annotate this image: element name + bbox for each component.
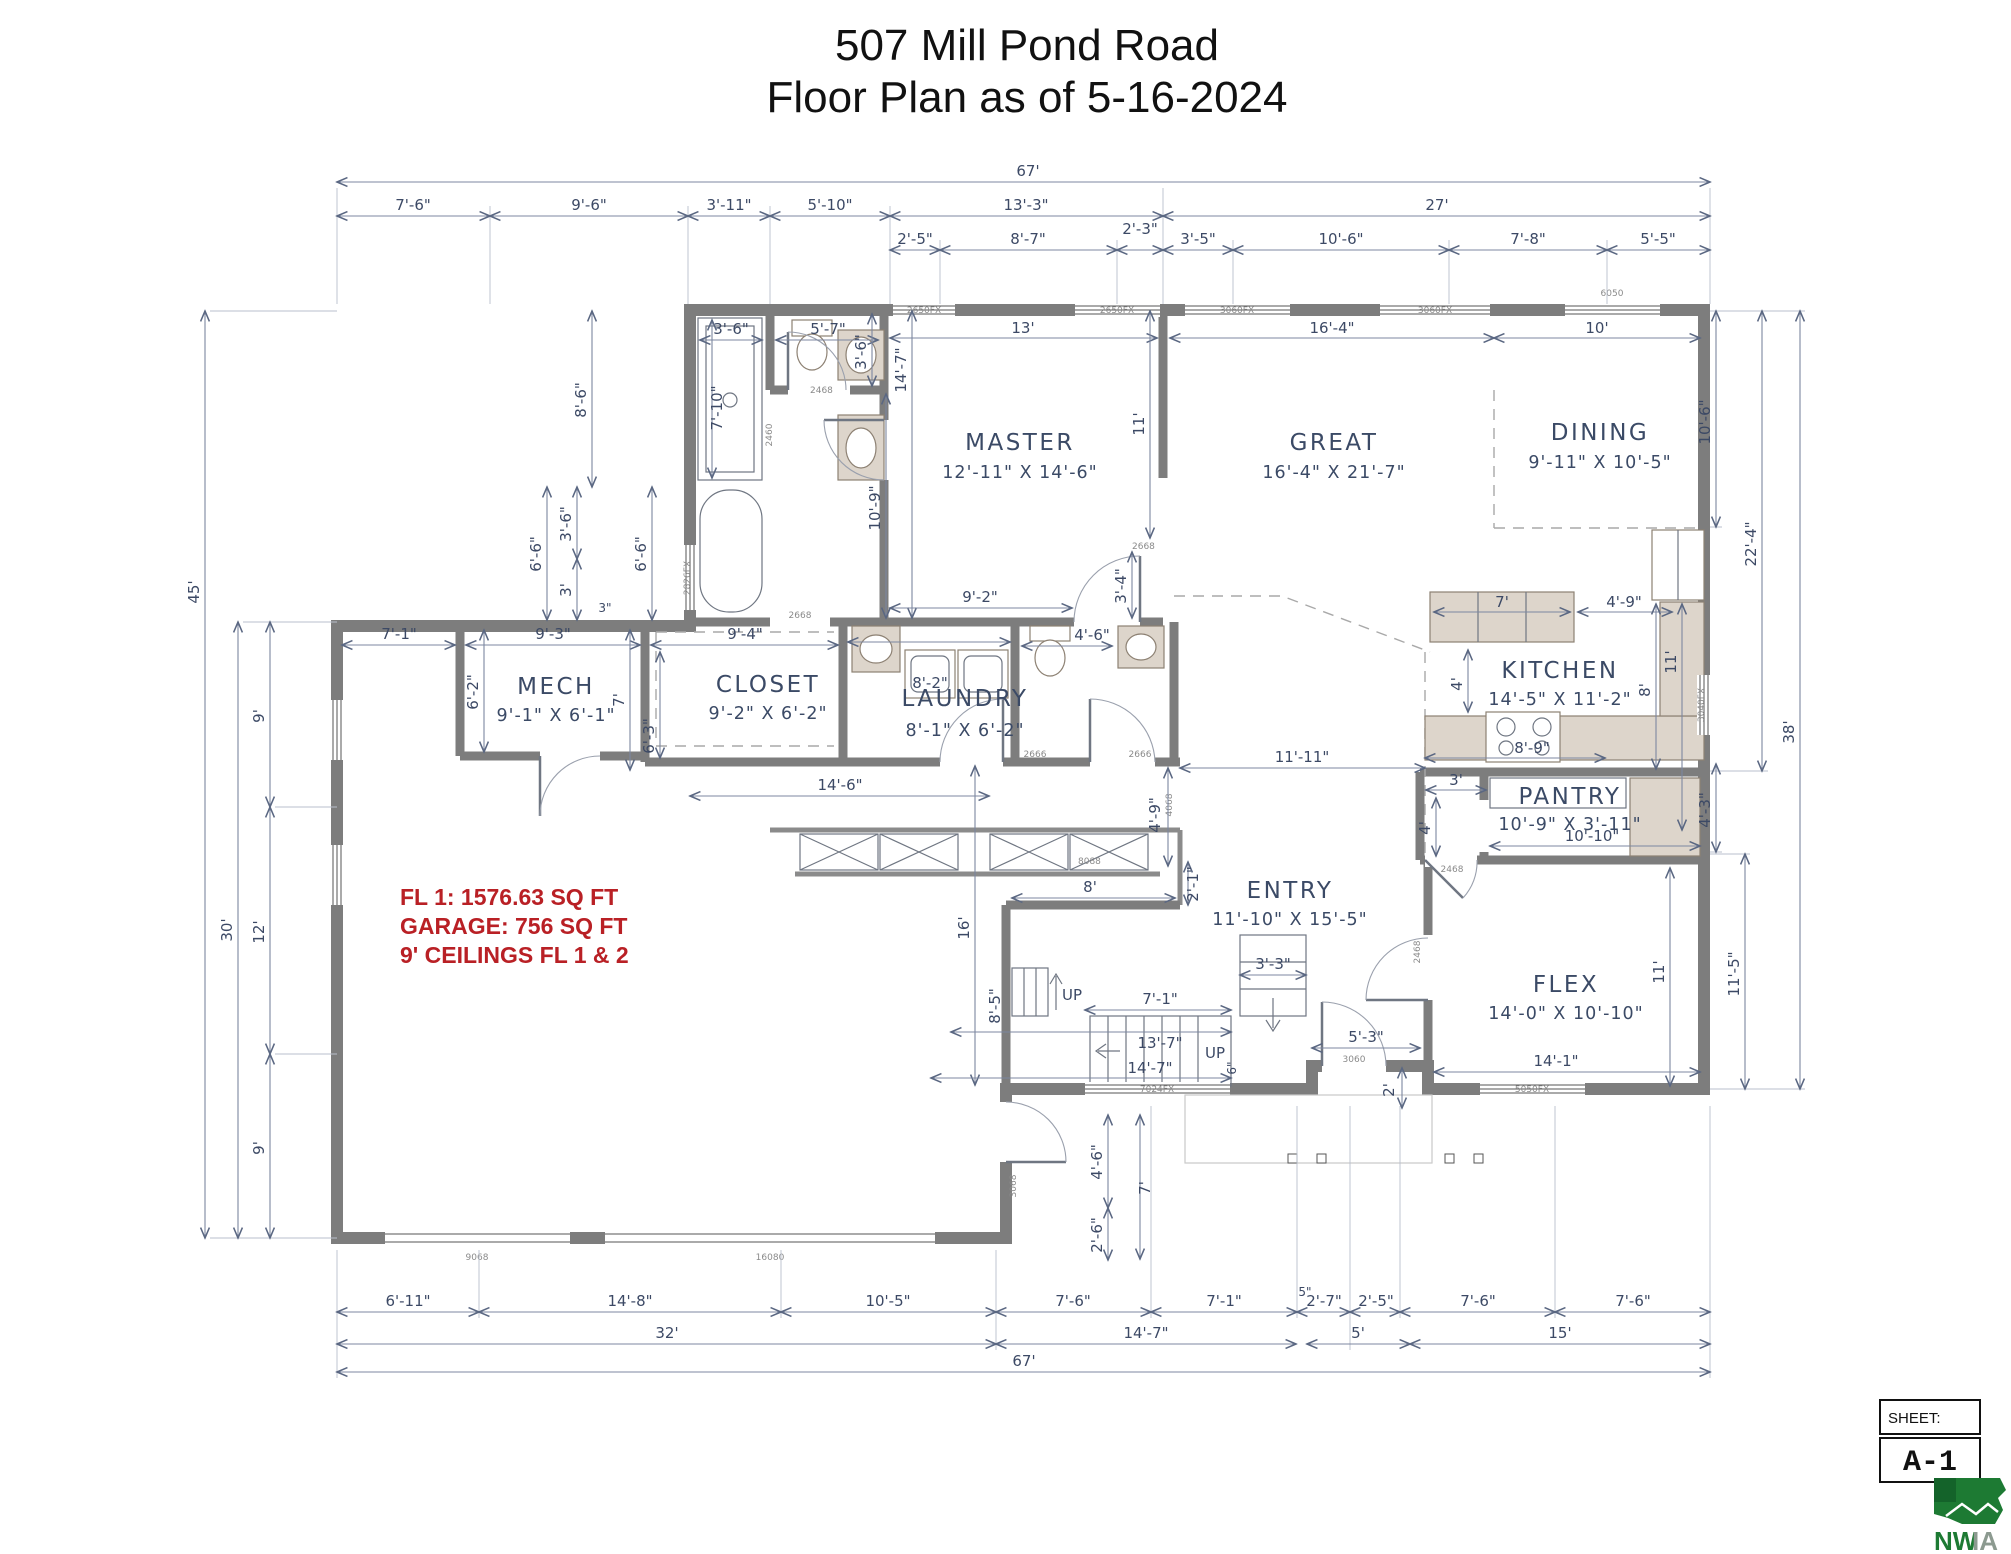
dim: 38'	[1780, 720, 1798, 743]
window-2826fx: 2826FX	[683, 545, 697, 610]
dim: 4'-9"	[1146, 797, 1164, 833]
window-label: 2650FX	[1100, 306, 1134, 316]
room-mech-dims: 9'-1" X 6'-1"	[497, 706, 616, 726]
stairs-up-label-1: UP	[1062, 986, 1082, 1004]
dim: 10'-6"	[1318, 230, 1363, 248]
area-annotation: FL 1: 1576.63 SQ FT GARAGE: 756 SQ FT 9'…	[400, 884, 629, 968]
dim: 7'-8"	[1510, 230, 1546, 248]
dim: 7'	[1136, 1181, 1154, 1195]
dim: 45'	[185, 580, 203, 603]
dim: 11'	[1662, 650, 1680, 673]
logo-text-ia: IA	[1972, 1526, 1998, 1554]
dim: 2'-3"	[1122, 220, 1158, 238]
dim: 7'-1"	[1206, 1292, 1242, 1310]
floor-plan-page: 507 Mill Pond Road Floor Plan as of 5-16…	[0, 0, 2011, 1554]
room-kitchen: KITCHEN	[1501, 658, 1618, 684]
dim: 4'	[1448, 677, 1466, 691]
room-entry: ENTRY	[1247, 878, 1334, 904]
dim: 3'-3"	[1255, 955, 1291, 973]
dim: 11'-5"	[1725, 951, 1743, 996]
window-3060fx-1: 3060FX	[1185, 303, 1290, 317]
room-master-dims: 12'-11" X 14'-6"	[942, 463, 1097, 483]
dim: 2'-6"	[1088, 1217, 1106, 1253]
dim: 3"	[598, 601, 611, 615]
annotation-line3: 9' CEILINGS FL 1 & 2	[400, 942, 629, 968]
room-dining: DINING	[1551, 420, 1650, 446]
room-kitchen-dims: 14'-5" X 11'-2"	[1488, 690, 1631, 710]
door-label-2468-nook: 2468	[1441, 865, 1464, 875]
dim: 4'-9"	[1606, 593, 1642, 611]
nwia-logo: NW IA	[1934, 1478, 2006, 1554]
dim: 6"	[1225, 1061, 1239, 1074]
dim: 8'-6"	[572, 382, 590, 418]
dim: 5'	[1351, 1324, 1365, 1342]
room-closet-dims: 9'-2" X 6'-2"	[709, 704, 828, 724]
dim: 3'-6"	[713, 320, 749, 338]
room-dining-dims: 9'-11" X 10'-5"	[1528, 453, 1671, 473]
room-entry-dims: 11'-10" X 15'-5"	[1212, 910, 1367, 930]
title-block: 507 Mill Pond Road Floor Plan as of 5-16…	[767, 21, 1288, 122]
laundry-sink	[852, 626, 900, 672]
dim: 15'	[1548, 1324, 1571, 1342]
dim: 7'-1"	[1142, 990, 1178, 1008]
window-2650fx-2: 2650FX	[1075, 303, 1160, 317]
dim: 2'-5"	[897, 230, 933, 248]
dim: 9'	[250, 709, 268, 723]
dim: 13'-3"	[1003, 196, 1048, 214]
dim: 2'-7"	[1306, 1292, 1342, 1310]
dim: 14'-7"	[892, 347, 910, 392]
dim: 4'-6"	[1074, 626, 1110, 644]
window-label: 2826FX	[683, 561, 693, 595]
toilet-halfbath	[1030, 626, 1070, 676]
garage-door-9068: 9068	[385, 1231, 570, 1263]
dim: 8'-7"	[1010, 230, 1046, 248]
door-label-2666-bath: 2666	[1129, 750, 1152, 760]
dim: 7'-6"	[395, 196, 431, 214]
dim: 12'	[250, 920, 268, 943]
dim: 2'-5"	[1358, 1292, 1394, 1310]
dim: 3'-5"	[1180, 230, 1216, 248]
dim: 6'-11"	[385, 1292, 430, 1310]
dim: 2'-1"	[1184, 866, 1202, 902]
dim: 5'-7"	[810, 320, 846, 338]
dim: 6'-3"	[640, 718, 658, 754]
door-label-2668-closet: 2668	[789, 611, 812, 621]
dim: 9'	[250, 1141, 268, 1155]
door-label-4068: 4068	[1165, 793, 1175, 816]
dim: 8'	[1083, 878, 1097, 896]
dim: 16'-4"	[1309, 319, 1354, 337]
window-5050fx: 5050FX	[1480, 1082, 1585, 1096]
door-label: 9068	[466, 1253, 489, 1263]
window-label: 5050FX	[1515, 1085, 1549, 1095]
dim: 3'-11"	[706, 196, 751, 214]
window-7024fx: 7024FX	[1085, 1082, 1230, 1096]
door-label: 16080	[756, 1253, 785, 1263]
dim: 10'-6"	[1696, 399, 1714, 444]
dim: 4'	[1416, 821, 1434, 835]
dim: 27'	[1425, 196, 1448, 214]
room-mech: MECH	[517, 674, 595, 700]
dim: 67'	[1016, 162, 1039, 180]
dim: 3'-4"	[1112, 568, 1130, 604]
garage-door-16080: 16080	[605, 1231, 935, 1263]
dim: 11'-11"	[1275, 748, 1330, 766]
room-master: MASTER	[965, 430, 1075, 456]
dimensions-right: 10'-6" 22'-4" 38' 4'-3" 11'-5"	[1696, 311, 1805, 1089]
dim: 13'	[1011, 319, 1034, 337]
porch	[1185, 1095, 1483, 1163]
dimensions-left: 45' 30' 9' 12' 9'	[185, 311, 337, 1238]
dim: 10'-5"	[865, 1292, 910, 1310]
dim: 14'-1"	[1533, 1052, 1578, 1070]
sheet-label: SHEET:	[1888, 1410, 1941, 1427]
dim: 7'-6"	[1615, 1292, 1651, 1310]
door-label-8088: 8088	[1078, 857, 1101, 867]
kitchen-counter	[1425, 712, 1704, 762]
window-3040fx: 3040FX	[1697, 675, 1711, 735]
dim: 4'-6"	[1088, 1144, 1106, 1180]
dim: 13'-7"	[1137, 1034, 1182, 1052]
room-pantry: PANTRY	[1519, 784, 1622, 810]
dim: 22'-4"	[1742, 521, 1760, 566]
dim: 32'	[655, 1324, 678, 1342]
dim: 10'	[1585, 319, 1608, 337]
door-label-2468-flex: 2468	[1413, 940, 1423, 963]
window-6050: 6050	[1565, 289, 1660, 317]
dim: 3'	[1449, 771, 1463, 789]
door-label-3068: 3068	[1009, 1174, 1019, 1197]
room-great-dims: 16'-4" X 21'-7"	[1262, 463, 1405, 483]
dim: 8'-2"	[912, 674, 948, 692]
vanity-master-2	[838, 415, 884, 480]
sheet-number: A-1	[1903, 1446, 1957, 1480]
dim: 11'	[1130, 412, 1148, 435]
logo-accent	[1934, 1478, 1956, 1502]
dim: 11'	[1650, 960, 1668, 983]
sheet-block: SHEET: A-1	[1880, 1400, 1980, 1482]
dim: 14'-7"	[1127, 1059, 1172, 1077]
dim: 3'-6"	[557, 506, 575, 542]
dim: 2'	[1380, 1083, 1398, 1097]
dim: 9'-4"	[727, 625, 763, 643]
dim: 5'-3"	[1348, 1028, 1384, 1046]
annotation-line1: FL 1: 1576.63 SQ FT	[400, 884, 618, 910]
dim: 9'-3"	[535, 625, 571, 643]
dim: 14'-8"	[607, 1292, 652, 1310]
dim: 3'-6"	[852, 334, 870, 370]
window-2650fx-1: 2650FX	[893, 303, 955, 317]
dim: 16'	[955, 916, 973, 939]
room-great: GREAT	[1290, 430, 1379, 456]
page-title-line2: Floor Plan as of 5-16-2024	[767, 73, 1288, 122]
room-flex-dims: 14'-0" X 10'-10"	[1488, 1004, 1643, 1024]
window-label: 3060FX	[1220, 306, 1254, 316]
window-garage-2	[330, 845, 344, 905]
dim: 6'-2"	[464, 674, 482, 710]
bathtub	[700, 490, 762, 612]
window-label: 3040FX	[1697, 688, 1707, 722]
dim: 67'	[1012, 1352, 1035, 1370]
dim: 4'-3"	[1696, 792, 1714, 828]
dim: 8'-5"	[986, 988, 1004, 1024]
dim: 7'	[1495, 593, 1509, 611]
dim: 9'-6"	[571, 196, 607, 214]
dim: 10'-10"	[1565, 827, 1620, 845]
window-garage-1	[330, 700, 344, 760]
window-label: 6050	[1601, 289, 1624, 299]
dim: 14'-6"	[817, 776, 862, 794]
page-title-line1: 507 Mill Pond Road	[835, 21, 1219, 70]
dim: 5'-5"	[1640, 230, 1676, 248]
floor-plan-drawing: 507 Mill Pond Road Floor Plan as of 5-16…	[0, 0, 2011, 1554]
door-label-3060: 3060	[1343, 1055, 1366, 1065]
dim: 7'-1"	[381, 625, 417, 643]
door-label-2666-laundry: 2666	[1024, 750, 1047, 760]
window-label: 7024FX	[1140, 1085, 1174, 1095]
dim: 7'-10"	[708, 385, 726, 430]
door-label-2668-master: 2668	[1132, 542, 1155, 552]
dim: 9'-2"	[962, 588, 998, 606]
dim: 5'-10"	[807, 196, 852, 214]
dim: 8'-9"	[1514, 739, 1550, 757]
dim: 10'-9"	[866, 485, 884, 530]
dim: 14'-7"	[1123, 1324, 1168, 1342]
dim: 30'	[218, 918, 236, 941]
dim: 7'	[610, 693, 628, 707]
dim: 3'	[557, 583, 575, 597]
dim: 8'	[1636, 683, 1654, 697]
dim: 7'-6"	[1055, 1292, 1091, 1310]
room-laundry-dims: 8'-1" X 6'-2"	[906, 721, 1025, 741]
refrigerator	[1652, 530, 1704, 600]
window-3060fx-2: 3060FX	[1380, 303, 1490, 317]
dim: 6'-6"	[632, 536, 650, 572]
room-closet: CLOSET	[716, 672, 820, 698]
door-label-2468-wc: 2468	[810, 386, 833, 396]
dim: 6'-6"	[527, 536, 545, 572]
window-label: 3060FX	[1418, 306, 1452, 316]
dim: 7'-6"	[1460, 1292, 1496, 1310]
annotation-line2: GARAGE: 756 SQ FT	[400, 913, 627, 939]
stairs-up-label-2: UP	[1205, 1044, 1225, 1062]
sink-halfbath	[1118, 626, 1164, 668]
door-label-2460: 2460	[765, 423, 775, 446]
room-flex: FLEX	[1533, 972, 1599, 998]
